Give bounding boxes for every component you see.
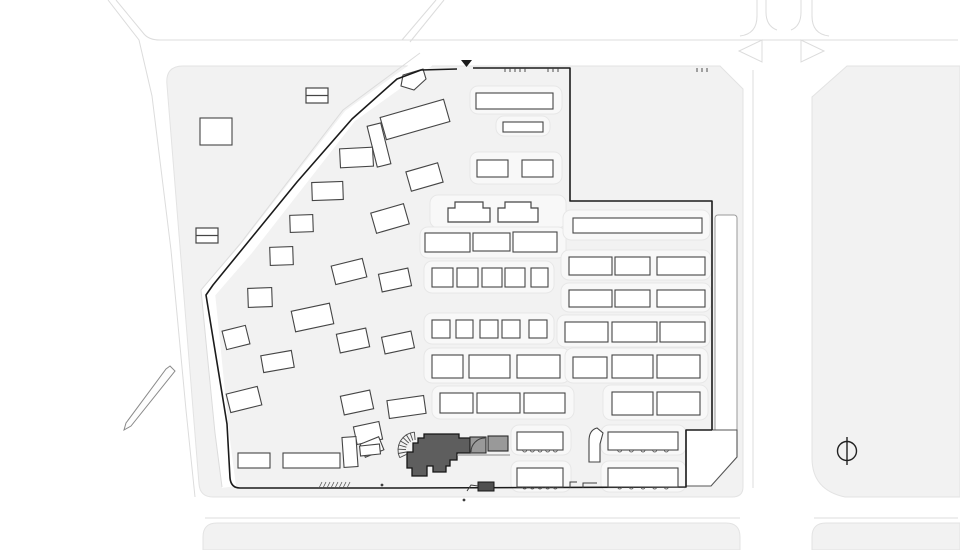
building (432, 268, 453, 287)
building (469, 355, 510, 378)
building (503, 122, 543, 132)
building (248, 288, 273, 308)
building (290, 215, 314, 233)
building (312, 181, 344, 200)
building (457, 268, 478, 287)
site-plan (0, 0, 960, 550)
building (569, 290, 612, 307)
site-plan-canvas (0, 0, 960, 550)
building (565, 322, 608, 342)
building (573, 357, 607, 378)
building (432, 320, 450, 338)
building (270, 247, 294, 266)
traffic-island (739, 40, 762, 62)
outbuilding (478, 482, 494, 491)
building (477, 160, 508, 177)
road-edge (116, 0, 958, 40)
building (517, 468, 563, 487)
building (476, 93, 553, 109)
building (657, 290, 705, 307)
building (340, 147, 374, 168)
annex-building (488, 436, 508, 451)
building (529, 320, 547, 338)
building (505, 268, 525, 287)
building (615, 290, 650, 307)
building (569, 257, 612, 275)
building (513, 232, 557, 252)
building (657, 392, 700, 415)
road-edge (740, 0, 757, 36)
city-block (812, 66, 960, 497)
building (615, 257, 650, 275)
building (522, 160, 553, 177)
wall-sliver (124, 366, 175, 430)
building (612, 392, 653, 415)
building (517, 432, 563, 450)
building (456, 320, 473, 338)
traffic-island (801, 40, 824, 62)
parcel-strip (715, 215, 737, 432)
building (517, 355, 560, 378)
road-edge (791, 0, 801, 30)
building (482, 268, 502, 287)
building (612, 322, 657, 342)
building (573, 218, 702, 233)
road-edge (766, 0, 777, 30)
building (480, 320, 498, 338)
building (612, 355, 653, 378)
building (283, 453, 340, 468)
building (432, 355, 463, 378)
site-boundary (421, 69, 457, 70)
road-edge (812, 0, 829, 36)
road-edge (402, 0, 436, 40)
building (502, 320, 520, 338)
building (531, 268, 548, 287)
building (342, 437, 358, 468)
building (608, 468, 678, 487)
building (524, 393, 565, 413)
building (440, 393, 473, 413)
city-block (203, 523, 740, 550)
building (608, 432, 678, 450)
building (200, 118, 232, 145)
city-block (812, 523, 960, 550)
road-edge (410, 0, 444, 42)
building (657, 257, 705, 275)
site-dot (463, 499, 466, 502)
building (473, 233, 510, 251)
building (238, 453, 270, 468)
building (360, 444, 381, 456)
building (425, 233, 470, 252)
building (660, 322, 705, 342)
building (477, 393, 520, 413)
building (657, 355, 700, 378)
site-dot (381, 484, 384, 487)
